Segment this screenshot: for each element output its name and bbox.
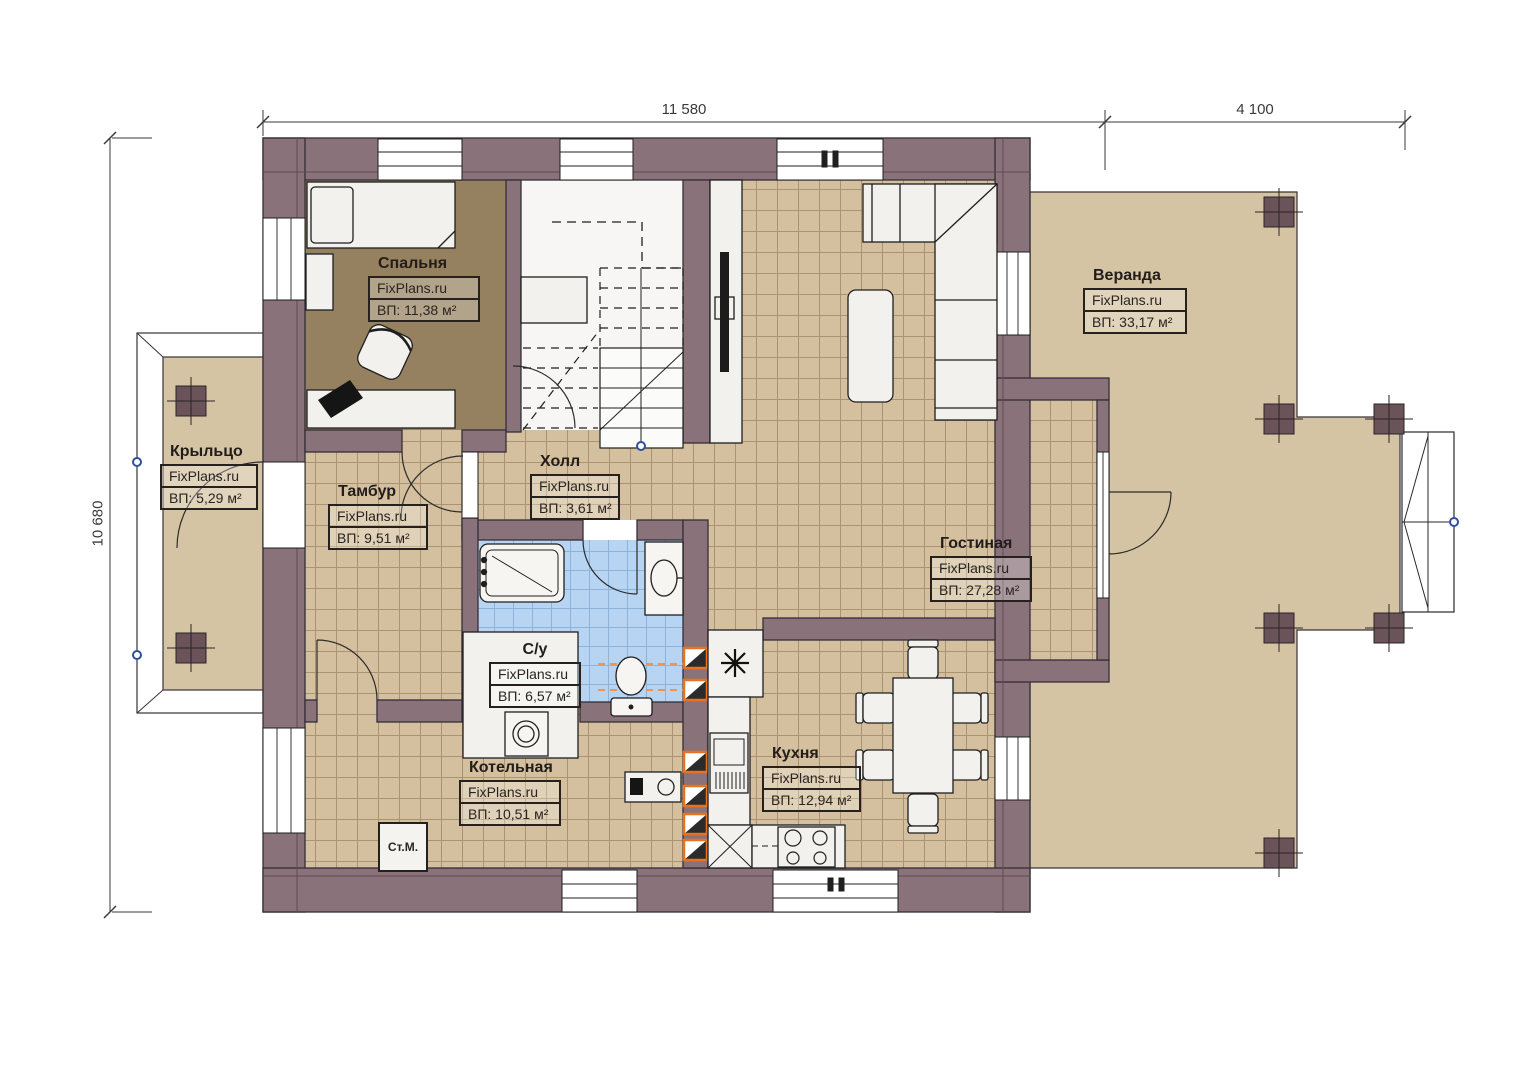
bay-wall-bottom bbox=[995, 660, 1109, 682]
room-info-box: FixPlans.ru ВП: 6,57 м² bbox=[489, 662, 581, 708]
room-area: ВП: 27,28 м² bbox=[932, 580, 1030, 600]
room-area: ВП: 3,61 м² bbox=[532, 498, 618, 518]
coffee-table bbox=[848, 290, 893, 402]
room-name: Холл bbox=[540, 453, 620, 471]
bathroom-sink bbox=[645, 542, 683, 615]
watermark-text: FixPlans.ru bbox=[491, 664, 579, 686]
chair bbox=[908, 794, 938, 826]
tv bbox=[720, 252, 729, 372]
dimension-width-main: 11 580 bbox=[634, 101, 734, 118]
watermark-text: FixPlans.ru bbox=[162, 466, 256, 488]
washing-machine bbox=[505, 712, 548, 756]
room-label-bedroom: Спальня FixPlans.ru ВП: 11,38 м² bbox=[368, 255, 480, 322]
watermark-text: FixPlans.ru bbox=[932, 558, 1030, 580]
dining-table bbox=[893, 678, 953, 793]
room-info-box: FixPlans.ru ВП: 12,94 м² bbox=[762, 766, 861, 812]
room-label-porch: Крыльцо FixPlans.ru ВП: 5,29 м² bbox=[160, 443, 258, 510]
watermark-text: FixPlans.ru bbox=[330, 506, 426, 528]
room-name: С/у bbox=[489, 641, 581, 659]
room-area: ВП: 33,17 м² bbox=[1085, 312, 1185, 332]
window-bedroom-left bbox=[263, 218, 305, 300]
chair bbox=[863, 750, 895, 780]
window-kitchen-bottom bbox=[773, 870, 898, 912]
window-living-top bbox=[777, 139, 883, 180]
bathtub bbox=[480, 544, 564, 602]
room-info-box: FixPlans.ru ВП: 3,61 м² bbox=[530, 474, 620, 520]
fridge bbox=[710, 733, 748, 793]
room-area: ВП: 11,38 м² bbox=[370, 300, 478, 320]
room-name: Котельная bbox=[469, 759, 561, 777]
room-area: ВП: 6,57 м² bbox=[491, 686, 579, 706]
vestibule-floor bbox=[305, 430, 462, 700]
room-label-kitchen: Кухня FixPlans.ru ВП: 12,94 м² bbox=[762, 745, 861, 812]
room-info-box: FixPlans.ru ВП: 11,38 м² bbox=[368, 276, 480, 322]
hall-door-opening bbox=[462, 452, 478, 518]
room-info-box: FixPlans.ru ВП: 33,17 м² bbox=[1083, 288, 1187, 334]
veranda-steps bbox=[1402, 432, 1454, 612]
room-info-box: FixPlans.ru ВП: 9,51 м² bbox=[328, 504, 428, 550]
boiler-cabinet bbox=[708, 630, 763, 697]
boiler-asterisk-icon bbox=[721, 649, 749, 677]
room-info-box: FixPlans.ru ВП: 27,28 м² bbox=[930, 556, 1032, 602]
floor-plan-drawing bbox=[0, 0, 1528, 1080]
window-bedroom-top bbox=[378, 139, 462, 180]
room-area: ВП: 9,51 м² bbox=[330, 528, 426, 548]
room-name: Крыльцо bbox=[170, 443, 258, 461]
equipment-table bbox=[625, 772, 681, 802]
room-name: Гостиная bbox=[940, 535, 1032, 553]
room-name: Кухня bbox=[772, 745, 861, 763]
room-area: ВП: 12,94 м² bbox=[764, 790, 859, 810]
room-label-living: Гостиная FixPlans.ru ВП: 27,28 м² bbox=[930, 535, 1032, 602]
stair-cabinet bbox=[521, 277, 587, 323]
room-name: Спальня bbox=[378, 255, 480, 273]
washing-machine-marker: Ст.М. bbox=[378, 822, 428, 872]
chair bbox=[863, 693, 895, 723]
room-label-bathroom: С/у FixPlans.ru ВП: 6,57 м² bbox=[489, 641, 581, 708]
kitchen-sink bbox=[708, 825, 752, 868]
dimension-height-left: 10 680 bbox=[90, 479, 107, 569]
watermark-text: FixPlans.ru bbox=[1085, 290, 1185, 312]
room-label-boiler: Котельная FixPlans.ru ВП: 10,51 м² bbox=[459, 759, 561, 826]
boiler-room-items bbox=[625, 772, 681, 802]
room-name: Веранда bbox=[1093, 267, 1187, 285]
room-label-hall: Холл FixPlans.ru ВП: 3,61 м² bbox=[530, 453, 620, 520]
entry-door-opening bbox=[263, 462, 305, 548]
window-boiler-left bbox=[263, 728, 305, 833]
room-label-veranda: Веранда FixPlans.ru ВП: 33,17 м² bbox=[1083, 267, 1187, 334]
room-info-box: FixPlans.ru ВП: 5,29 м² bbox=[160, 464, 258, 510]
watermark-text: FixPlans.ru bbox=[370, 278, 478, 300]
watermark-text: FixPlans.ru bbox=[532, 476, 618, 498]
window-living-right bbox=[995, 252, 1030, 335]
watermark-text: FixPlans.ru bbox=[764, 768, 859, 790]
window-kitchen-right bbox=[995, 737, 1030, 800]
room-area: ВП: 5,29 м² bbox=[162, 488, 256, 508]
nightstand bbox=[306, 254, 333, 310]
bay-wall-top bbox=[995, 378, 1109, 400]
chair bbox=[949, 750, 981, 780]
room-info-box: FixPlans.ru ВП: 10,51 м² bbox=[459, 780, 561, 826]
veranda-door-opening bbox=[1097, 452, 1109, 598]
room-name: Тамбур bbox=[338, 483, 428, 501]
bed-pillow bbox=[311, 187, 353, 243]
room-area: ВП: 10,51 м² bbox=[461, 804, 559, 824]
chair bbox=[908, 647, 938, 679]
room-label-vestibule: Тамбур FixPlans.ru ВП: 9,51 м² bbox=[328, 483, 428, 550]
porch-structure bbox=[137, 333, 263, 713]
chair bbox=[949, 693, 981, 723]
dimension-width-veranda: 4 100 bbox=[1205, 101, 1305, 118]
window-boiler-bottom bbox=[562, 870, 637, 912]
floor-plan-page: 11 580 4 100 10 680 Спальня FixPlans.ru … bbox=[0, 0, 1528, 1080]
window-stair-top bbox=[560, 139, 633, 180]
wall-exterior-bottom bbox=[263, 868, 1030, 912]
watermark-text: FixPlans.ru bbox=[461, 782, 559, 804]
